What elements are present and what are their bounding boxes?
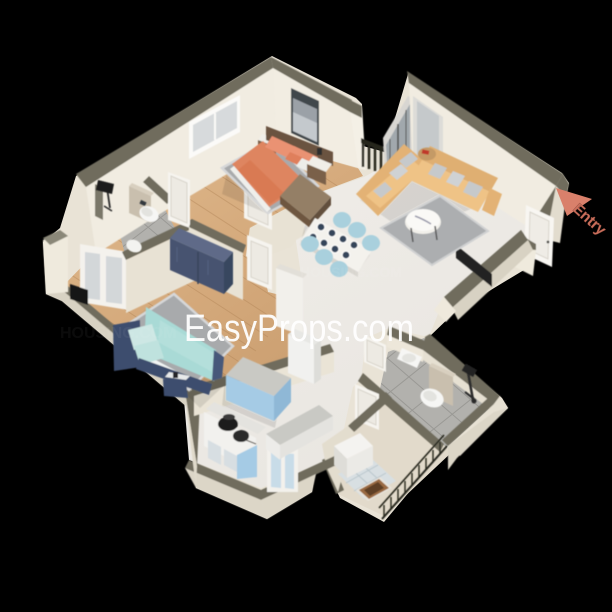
svg-text:HOUSING.COM: HOUSING.COM [300, 264, 402, 280]
svg-text:HOUSING.COM: HOUSING.COM [60, 325, 176, 342]
svg-text:EasyProps.com: EasyProps.com [184, 308, 414, 350]
